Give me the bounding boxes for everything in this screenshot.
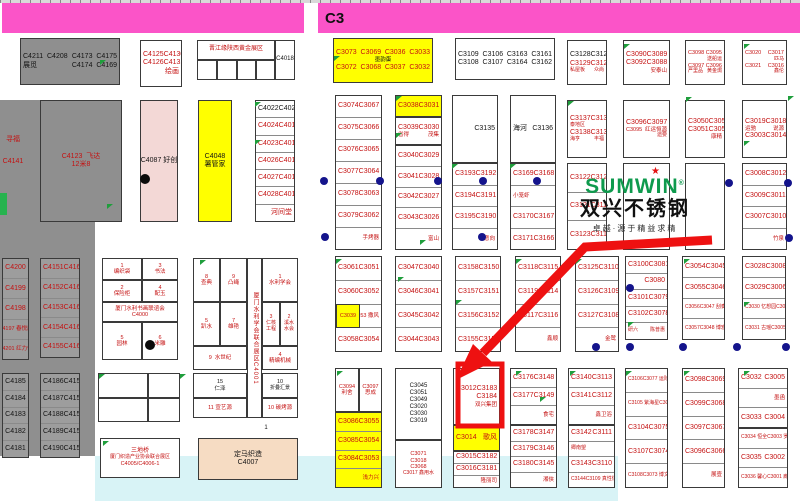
cell-line: C3184 xyxy=(454,393,499,401)
cell-line: C3077C3064 xyxy=(336,162,381,184)
cell-line: C3108C3073 博文 xyxy=(626,464,667,487)
water-union-cell: 1水利学会 xyxy=(262,258,298,302)
cell-line: 寻福 xyxy=(0,136,26,144)
cell-line: 小笼虾 xyxy=(511,186,555,208)
booth-code-text: C3045 xyxy=(410,383,428,390)
cell-line: C4152C4162 xyxy=(41,279,79,299)
booth-code-text: C4087 好创 xyxy=(141,157,178,165)
booth-code-text: C3067 xyxy=(359,102,380,110)
cell-line: C3046C3041 xyxy=(396,281,441,305)
cell-line: C3090C3089 xyxy=(624,51,669,59)
booth-cell-c3135: C3135 xyxy=(452,95,498,163)
booth-code-text: C3047 xyxy=(398,264,419,272)
cell-line: C3055C3046 xyxy=(683,278,724,299)
cell-line: 查典 xyxy=(194,280,219,286)
booth-code-text: C3074 xyxy=(649,448,668,456)
booth-code-text: C3050 xyxy=(688,118,709,126)
booth-code-text: C3146 xyxy=(534,445,555,453)
booth-code-text: 竹泉 xyxy=(773,236,784,242)
cell-line: C3107C3074 xyxy=(626,440,667,464)
cell-line: 富山 xyxy=(396,229,441,249)
booth-code-text: 精编机械 xyxy=(269,358,291,364)
booth-code-text: C3009 xyxy=(745,192,766,200)
cell-line: C4126C4131 xyxy=(141,59,181,67)
booth-code-text: 书法 xyxy=(154,269,165,275)
cell-line: C3156C3152 xyxy=(456,305,500,329)
booth-code-text: C4022 xyxy=(258,105,279,113)
cell-line: 仁泽 xyxy=(194,386,246,392)
cell-line: 薯管家 xyxy=(199,161,231,169)
cell-line: C4154C4164 xyxy=(41,318,79,338)
booth-code-text: C4155 xyxy=(43,343,64,351)
cell-line: 编织袋 xyxy=(103,269,141,275)
booth-code-text: C4173 C4175 xyxy=(72,53,117,61)
booth-code-text: C3063 xyxy=(359,190,380,198)
cell-line: 康精 xyxy=(686,134,724,140)
booth-code-text: C3046 xyxy=(398,288,419,296)
cell-line: 意向 xyxy=(453,229,497,250)
green-corner-mark xyxy=(516,371,522,376)
cell-line: C3117C3116 xyxy=(516,305,560,329)
pillar-dot xyxy=(626,343,634,351)
booth-code-text: C4130 xyxy=(164,51,182,59)
booth-cell: C3097思成 xyxy=(359,368,382,412)
cell-line: 隆丽司 xyxy=(454,476,499,487)
booth-column: C3015C3182C3016C3181隆丽司 xyxy=(453,451,500,488)
booth-code-text: C3107 xyxy=(628,448,649,456)
cell-line: 厦门水利学会联合展区C4001 xyxy=(249,259,260,417)
booth-code-text: C3163 C3161 xyxy=(507,51,552,59)
booth-grid-c4151: C4151C4161C4152C4162C4153C4163C4154C4164… xyxy=(40,258,80,358)
booth-code-text: C3164 C3162 xyxy=(507,59,552,67)
booth-code-text: C3097 xyxy=(685,424,706,432)
cell-line: C3045 xyxy=(396,383,441,390)
cell-line: 绘画 xyxy=(141,68,181,76)
booth-code-text: C3115 xyxy=(538,264,558,272)
booth-code-text: C3077 xyxy=(338,168,359,176)
booth-code-text: C3017 鑫用水 xyxy=(403,471,434,477)
cell-line: 利舍 xyxy=(336,390,358,396)
cell-line: C3084C3053 xyxy=(336,451,381,470)
booth-code-text: C3003 xyxy=(745,132,766,140)
cell-line: C4000 xyxy=(103,312,177,318)
cell-line: C3072 C3068C3037 C3032 xyxy=(334,64,432,72)
cell-line: C4087 好创 xyxy=(141,157,177,165)
booth-code-text: C4200 xyxy=(5,264,26,272)
floorplan-c3: C3 C4211 C4208C4173 C4175展觅C4174 C4169C4… xyxy=(0,0,800,501)
booth-code-text: C3157 xyxy=(458,288,479,296)
cell-line: C3008C3012 xyxy=(743,164,786,186)
cell-line: C3040C3029 xyxy=(396,146,441,167)
cell-line: C3033C3004 xyxy=(739,408,787,427)
booth-code-text: C3069 xyxy=(706,376,725,384)
cell-line: C3118C3115 xyxy=(516,257,560,281)
booth-block: C3137C3134泰地区C3138C3133海亨丰福 xyxy=(567,100,607,158)
green-marker-rect xyxy=(0,193,7,215)
booth-code-text: C3125 xyxy=(591,51,607,59)
cell-line: C3108 C3107C3164 C3162 xyxy=(456,59,554,67)
cell-line: C3109 C3106C3163 C3161 xyxy=(456,51,554,59)
booth-code-text: C3014 xyxy=(766,132,787,140)
booth-code-text: C4181 xyxy=(5,445,26,453)
booth-code-text: C3073 博文 xyxy=(643,473,668,479)
pillar-dot xyxy=(733,343,741,351)
booth-code-text: 薯管家 xyxy=(205,161,226,169)
booth-code-text: C3041 xyxy=(419,288,440,296)
booth-code-text: C3127 xyxy=(578,312,599,320)
cell-line: C3102C3078 xyxy=(626,307,667,324)
booth-code-text: C3007 xyxy=(776,305,786,311)
booth-code-text: C3057 xyxy=(685,326,700,332)
cell-line: C3127C3108 xyxy=(576,305,618,329)
booth-code-text: C4165 xyxy=(64,343,80,351)
green-corner-mark xyxy=(788,96,794,101)
booth-code-text: C3195 xyxy=(455,213,476,221)
booth-code-text: C3012 xyxy=(766,170,787,178)
booth-code-text: C4189 xyxy=(43,428,64,436)
booth-code-text: C3052 xyxy=(709,126,725,134)
booth-code-text: C3088 xyxy=(647,59,668,67)
cell-line: C4198 xyxy=(3,299,28,319)
cell-line: 园林 xyxy=(103,341,141,347)
booth-code-text: C3041 xyxy=(398,173,419,181)
water-union-cell: 3仁核工程 xyxy=(262,302,280,346)
booth-code-text: C3067 xyxy=(706,424,725,432)
booth-code-text: C3061 xyxy=(338,264,359,272)
booth-code-text: C4026 xyxy=(258,157,279,165)
green-corner-mark xyxy=(180,374,186,379)
booth-code-text: C4125 xyxy=(143,51,164,59)
booth-strip-c4200: C4200C4199C4198C4197 春悦床C4201 红力恒 xyxy=(2,258,29,360)
booth-code-text: C3004 xyxy=(764,414,785,422)
booth-column: C3100C3081C3080C3101C3079C3102C3078研六陈普惠 xyxy=(625,256,668,340)
cell-line: C3039 xyxy=(337,313,359,319)
cell-line: 严里品黄金焗 xyxy=(686,69,724,75)
cell-line: 鑫伦 xyxy=(743,69,786,75)
booth-code-text: C4199 xyxy=(5,285,26,293)
cell-line: C4189C4154 xyxy=(41,424,79,441)
booth-code-text: 浅力兴 xyxy=(362,475,379,481)
booth-code-text: C3136 xyxy=(532,125,553,133)
booth-code-text: C3109 真性情 xyxy=(586,477,615,483)
green-corner-mark xyxy=(744,44,750,49)
booth-code-text: C3046 xyxy=(706,284,725,292)
cell-line: C4183 xyxy=(3,408,28,425)
booth-code-text: C3055 xyxy=(685,284,706,292)
booth-code-text: 10 碳烤源 xyxy=(268,405,292,411)
booth-code-text: C4186 xyxy=(43,378,64,386)
booth-code-text: 工程 xyxy=(266,327,276,333)
water-assoc-cell: 2保险柜 xyxy=(102,280,142,302)
cell-line: C4027C4012 xyxy=(256,170,294,187)
booth-code-text: C4011 xyxy=(279,191,295,199)
cell-line: C3016C3181 xyxy=(454,464,499,476)
cell-line: C3157C3151 xyxy=(456,281,500,305)
cell-line: C4200 xyxy=(3,259,28,279)
booth-code-text: C3074 xyxy=(338,102,359,110)
booth-code-text: C3086 xyxy=(338,418,359,426)
pillar-dot xyxy=(434,177,442,185)
cell-line: C4185 xyxy=(3,374,28,391)
booth-code-text: C4183 xyxy=(5,411,26,419)
booth-code-text: C3039 xyxy=(398,124,419,132)
cell-line: C3060C3052 xyxy=(336,281,381,305)
booth-cell-stack: C3045C3051C3049C3020C3030C3019 xyxy=(395,368,442,440)
booth-code-text: C3134 xyxy=(591,115,607,123)
booth-cell: C3039C3030省得茂集 xyxy=(395,117,442,145)
booth-code-text: 折叠汇景 xyxy=(270,386,290,392)
booth-code-text: C3018 xyxy=(766,118,787,126)
booth-code-text: C3062 xyxy=(359,212,380,220)
star-icon: ★ xyxy=(651,167,661,177)
booth-code-text: C3053 xyxy=(709,118,725,126)
booth-code-text: C4048 xyxy=(205,153,226,161)
cell-line: C3178C3147 xyxy=(511,426,556,442)
booth-code-text: C4151 xyxy=(43,264,64,272)
cell-line: C4186C4157 xyxy=(41,374,79,391)
booth-code-text: C3110 xyxy=(592,460,612,468)
booth-code-text: C3056 xyxy=(685,305,700,311)
water-assoc-cell: 3书法 xyxy=(142,258,178,280)
booth-code-text: C3177 xyxy=(513,392,534,400)
cell-line: 精编机械 xyxy=(263,358,297,364)
pillar-dot xyxy=(479,177,487,185)
booth-code-text: C3016 xyxy=(456,465,477,473)
green-corner-mark xyxy=(516,259,522,264)
pillar-dot xyxy=(782,343,790,351)
cell-line: 趴水 xyxy=(194,324,219,330)
pillar-dot xyxy=(725,179,733,187)
booth-code-text: 食宅 xyxy=(543,412,554,418)
booth-code-text: C3135 xyxy=(474,125,495,133)
green-corner-mark xyxy=(684,259,690,264)
booth-code-text: C3030 xyxy=(419,124,440,132)
cell-line: 展壹 xyxy=(683,464,724,487)
cell-line: C3003C3014 xyxy=(743,132,786,140)
empty-grid-cell xyxy=(148,398,180,422)
green-corner-mark xyxy=(420,240,426,245)
booth-code-text: C3181 xyxy=(477,465,498,473)
booth-cell-c4018: C4018 xyxy=(275,40,295,80)
booth-code-text: C3043 xyxy=(419,336,440,344)
booth-code-text: C4197 春悦床 xyxy=(2,326,29,332)
booth-code-text: 鑫顺 xyxy=(547,336,558,342)
cell-line: 安泰山 xyxy=(624,68,669,74)
booth-code-text: C3035 xyxy=(741,454,762,462)
booth-code-text: C3179 xyxy=(513,445,534,453)
water-union-cell: 10折叠汇景 xyxy=(262,373,298,398)
booth-code-text: C4000 xyxy=(132,312,148,318)
cell-line: C4184 xyxy=(3,391,28,408)
cell-line: C3099C3068 xyxy=(683,393,724,417)
booth-code-text: C4153 xyxy=(43,304,64,312)
booth-code-text: C4162 xyxy=(64,284,80,292)
booth-code-text: C3006 xyxy=(766,284,786,292)
booth-block: C3128C3125C3129C3124私屋板众尚 xyxy=(567,40,607,85)
booth-code-text: C3031 xyxy=(419,102,440,110)
booth-code-text: C3152 xyxy=(479,312,500,320)
booth-code-text: C3029 xyxy=(419,152,440,160)
green-corner-mark xyxy=(337,371,343,376)
cell-line: C3007C3010 xyxy=(743,207,786,229)
booth-strip-c4185: C4185C4184C4183C4182C4181 xyxy=(2,373,29,458)
booth-block: C3050C3053C3051C3052康精 xyxy=(685,100,725,158)
booth-code-text: C3079 xyxy=(338,212,359,220)
booth-code-text: 编织袋 xyxy=(114,269,131,275)
booth-strip-c4087: C4087 好创 xyxy=(140,100,178,222)
booth-code-text: C4027 xyxy=(258,174,279,182)
booth-column: C3125C3110C3126C3109C3127C3108金鹭 xyxy=(575,256,619,352)
booth-code-text: C3158 xyxy=(458,264,479,272)
cell-line: C3128C3125 xyxy=(568,51,606,59)
booth-code-text: C3153 xyxy=(479,336,500,344)
cell-line: C3019 xyxy=(396,418,441,425)
cell-line: 配玉 xyxy=(143,291,177,297)
booth-code-text: C3068 xyxy=(706,400,725,408)
green-corner-mark xyxy=(255,140,261,145)
cell-line: C3158C3150 xyxy=(456,257,500,281)
booth-code-text: C3085 xyxy=(338,437,359,445)
booth-code-text: 仁泽 xyxy=(214,386,225,392)
booth-column: C3032C3005墨函C3033C3004 xyxy=(738,368,788,428)
cell-line: C3155C3153 xyxy=(456,328,500,351)
green-corner-mark xyxy=(107,204,113,209)
cell-line: C3142C3111 xyxy=(569,426,614,442)
booth-cell-yellow: C3014歌风 xyxy=(453,425,500,451)
cell-line: 雄艳 xyxy=(221,324,246,330)
cell-line: C4028C4011 xyxy=(256,187,294,204)
cell-line: C3195C3190 xyxy=(453,207,497,229)
booth-code-text: C3078 xyxy=(338,190,359,198)
booth-code-text: C3119 xyxy=(518,288,538,296)
cell-line: 鑫卫浴 xyxy=(569,406,614,424)
booth-code-text: C3064 xyxy=(359,168,380,176)
booth-code-text: C3167 xyxy=(534,213,555,221)
cell-line: 晋江缘陕西黄金展区 xyxy=(198,46,274,53)
booth-code-text: C3033 xyxy=(741,414,762,422)
booth-code-text: C3008 xyxy=(766,263,786,271)
booth-code-text: C3031 古瑶 xyxy=(745,326,771,332)
tiny-label: 1 xyxy=(260,424,272,434)
cell-line: C3086C3055 xyxy=(336,413,381,432)
booth-code-text: C3104 xyxy=(628,424,649,432)
booth-code-text: C3190 xyxy=(476,213,497,221)
booth-block-header: 晋江缘陕西黄金展区 xyxy=(197,40,275,60)
booth-code-text: C3019 xyxy=(410,418,428,425)
booth-code-text: 鑫卫浴 xyxy=(595,412,612,418)
cell-line: C3097C3067 xyxy=(683,417,724,441)
cell-line: C3017 鑫用水 xyxy=(396,471,441,477)
booth-code-text: C3101 xyxy=(628,294,649,302)
booth-code-text: 众尚 xyxy=(594,68,604,74)
booth-code-text: 遗要 xyxy=(657,133,667,139)
booth-code-text: C3051 xyxy=(410,390,428,397)
cell-line: C4190C4153 xyxy=(41,441,79,457)
booth-code-text: C4188 xyxy=(43,411,64,419)
booth-column: C3140C3113C3141C3112鑫卫浴 xyxy=(568,368,615,425)
booth-code-text: 隆丽司 xyxy=(480,478,497,484)
cell-line: C3096C3097 xyxy=(624,119,669,127)
booth-code-text: 园林 xyxy=(116,341,127,347)
booth-cell xyxy=(197,60,217,80)
cell-line: C3057C3048 博宏 xyxy=(683,319,724,339)
booth-code-text: C3045 xyxy=(706,263,725,271)
green-corner-mark xyxy=(744,302,750,307)
brand-text: SUMWIN xyxy=(585,175,679,198)
cell-line: 墨函 xyxy=(739,389,787,409)
cell-line: C3144C3109 真性情 xyxy=(569,473,614,488)
booth-code-text: C4024 xyxy=(258,122,279,130)
booth-block: C3019C3018运驰说源C3003C3014 xyxy=(742,100,787,158)
booth-code-text: C3075 xyxy=(338,124,359,132)
cell-line: 思成 xyxy=(360,390,381,396)
booth-code-text: C4201 红力恒 xyxy=(2,346,29,352)
booth-code-text: C3084 xyxy=(338,455,359,463)
water-union-cell: 4精编机械 xyxy=(262,346,298,370)
booth-code-text: C3144 xyxy=(571,477,586,483)
cell-line: 12米8 xyxy=(41,161,121,169)
booth-code-text: C3076 xyxy=(338,146,359,154)
booth-code-text: C3108 C3107 xyxy=(458,59,503,67)
cell-line: 双兴集团 xyxy=(454,402,499,408)
booth-block-c4007: 定马织造C4007 xyxy=(198,438,298,480)
booth-code-text: 1 xyxy=(264,425,267,432)
booth-block: C3090C3089C3092C3088安泰山 xyxy=(623,40,670,85)
booth-code-text: C3030 xyxy=(410,411,428,418)
cell-line: C3193C3192 xyxy=(453,164,497,186)
booth-column: C3074C3067C3075C3066C3076C3065C3077C3064… xyxy=(335,95,382,250)
cell-line: 省得茂集 xyxy=(396,132,441,138)
booth-code-text: C3055 xyxy=(359,418,380,426)
booth-code-text: C4152 xyxy=(43,284,64,292)
cell-line: C3049 xyxy=(396,397,441,404)
booth-code-text: 金鹭 xyxy=(605,336,616,342)
booth-code-text: C3047 刮奏板 xyxy=(700,305,725,311)
cell-line: C4125C4130 xyxy=(141,51,181,59)
green-corner-mark xyxy=(452,164,458,169)
booth-code-text: C3128 xyxy=(570,51,591,59)
booth-cell-yellow: C3038C3031 xyxy=(395,95,442,117)
pillar-dot xyxy=(592,343,600,351)
booth-code-text: C3126 xyxy=(578,288,599,296)
booth-code-text: 展觅 xyxy=(23,62,37,70)
booth-block: C3109 C3106C3163 C3161C3108 C3107C3164 C… xyxy=(455,38,555,80)
booth-code-text: 雄艳 xyxy=(228,324,239,330)
booth-column: C3106C3077 运际C3105 紫海星C3076 R&BC3104C307… xyxy=(625,368,668,488)
booth-code-text: C3105 紫海星 xyxy=(628,401,659,407)
booth-code-text: C3042 xyxy=(398,193,419,201)
booth-code-text: C3040 xyxy=(398,152,419,160)
booth-code-text: 晋江缘陕西黄金展区 xyxy=(209,46,263,53)
booth-code-text: C3193 xyxy=(455,170,476,178)
booth-column: C3047C3040C3046C3041C3045C3042C3044C3043 xyxy=(395,256,442,352)
green-corner-mark xyxy=(744,141,750,146)
cell-line: C3015C3182 xyxy=(454,452,499,464)
cell-line: C3076C3065 xyxy=(336,140,381,162)
cell-line: C3135 xyxy=(453,125,497,133)
cell-line: C3038C3031 xyxy=(396,102,441,110)
cell-line: C4024C4015 xyxy=(256,118,294,135)
cell-line: C4201 红力恒 xyxy=(3,340,28,359)
booth-code-text: C3184 xyxy=(476,393,497,401)
cell-line: 11 宣艺源 xyxy=(194,405,246,411)
booth-column: C3098C3069C3099C3068C3097C3067C3096C3066… xyxy=(682,368,725,488)
booth-code-text: C3096 xyxy=(626,119,647,127)
booth-code-text: C3072 C3068 xyxy=(336,64,381,72)
booth-code-text: C3054 xyxy=(359,437,380,445)
booth-code-text: C3081 xyxy=(649,261,668,269)
booth-code-text: C3097 xyxy=(647,119,668,127)
